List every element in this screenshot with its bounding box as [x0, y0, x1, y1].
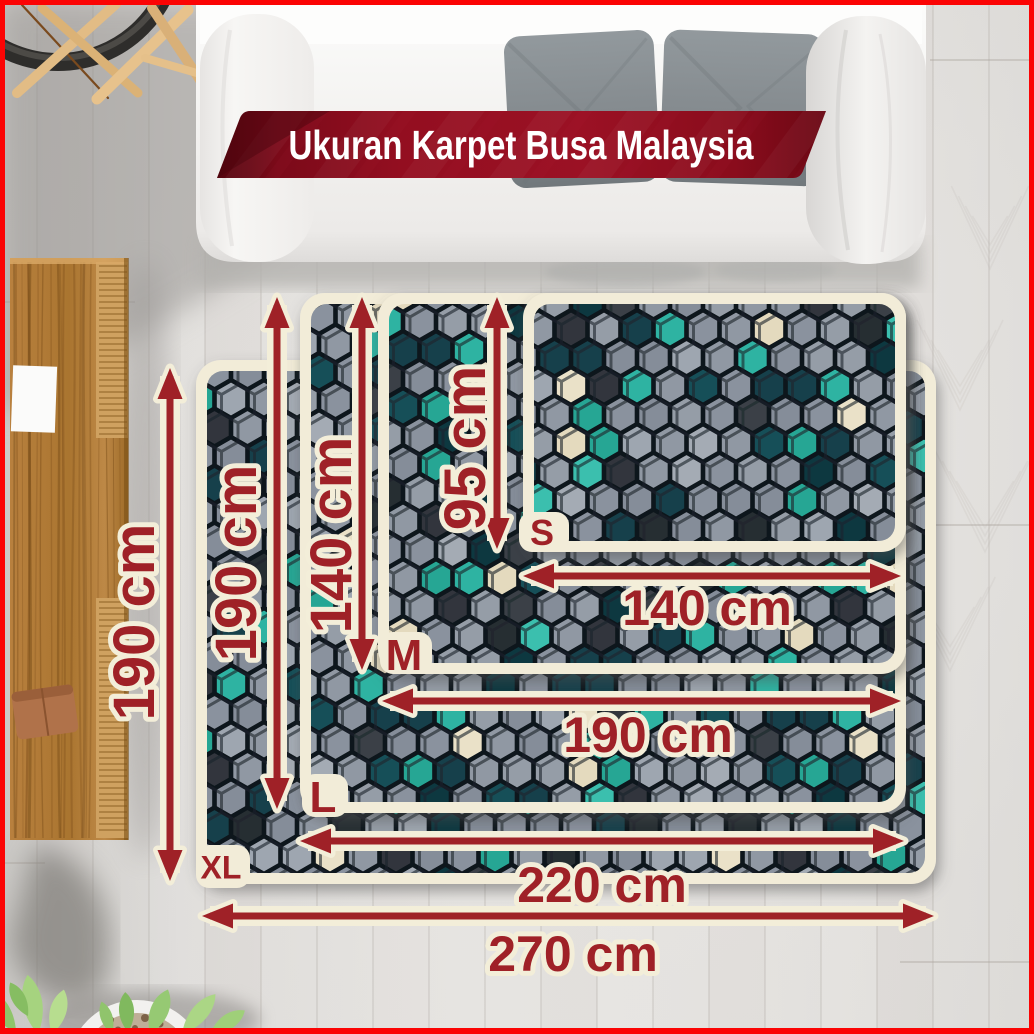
svg-text:L: L	[310, 773, 337, 822]
svg-text:220 cm: 220 cm	[517, 857, 687, 913]
svg-text:270 cm: 270 cm	[488, 926, 658, 982]
svg-text:XL: XL	[201, 850, 242, 886]
svg-text:190 cm: 190 cm	[102, 524, 167, 721]
svg-text:M: M	[386, 631, 423, 680]
svg-text:95 cm: 95 cm	[433, 366, 498, 530]
svg-text:S: S	[530, 512, 554, 553]
svg-text:140 cm: 140 cm	[622, 580, 792, 636]
svg-text:190 cm: 190 cm	[563, 707, 733, 763]
svg-text:190 cm: 190 cm	[204, 465, 269, 662]
svg-text:140 cm: 140 cm	[299, 437, 364, 634]
svg-text:Ukuran Karpet Busa Malaysia: Ukuran Karpet Busa Malaysia	[289, 122, 755, 168]
